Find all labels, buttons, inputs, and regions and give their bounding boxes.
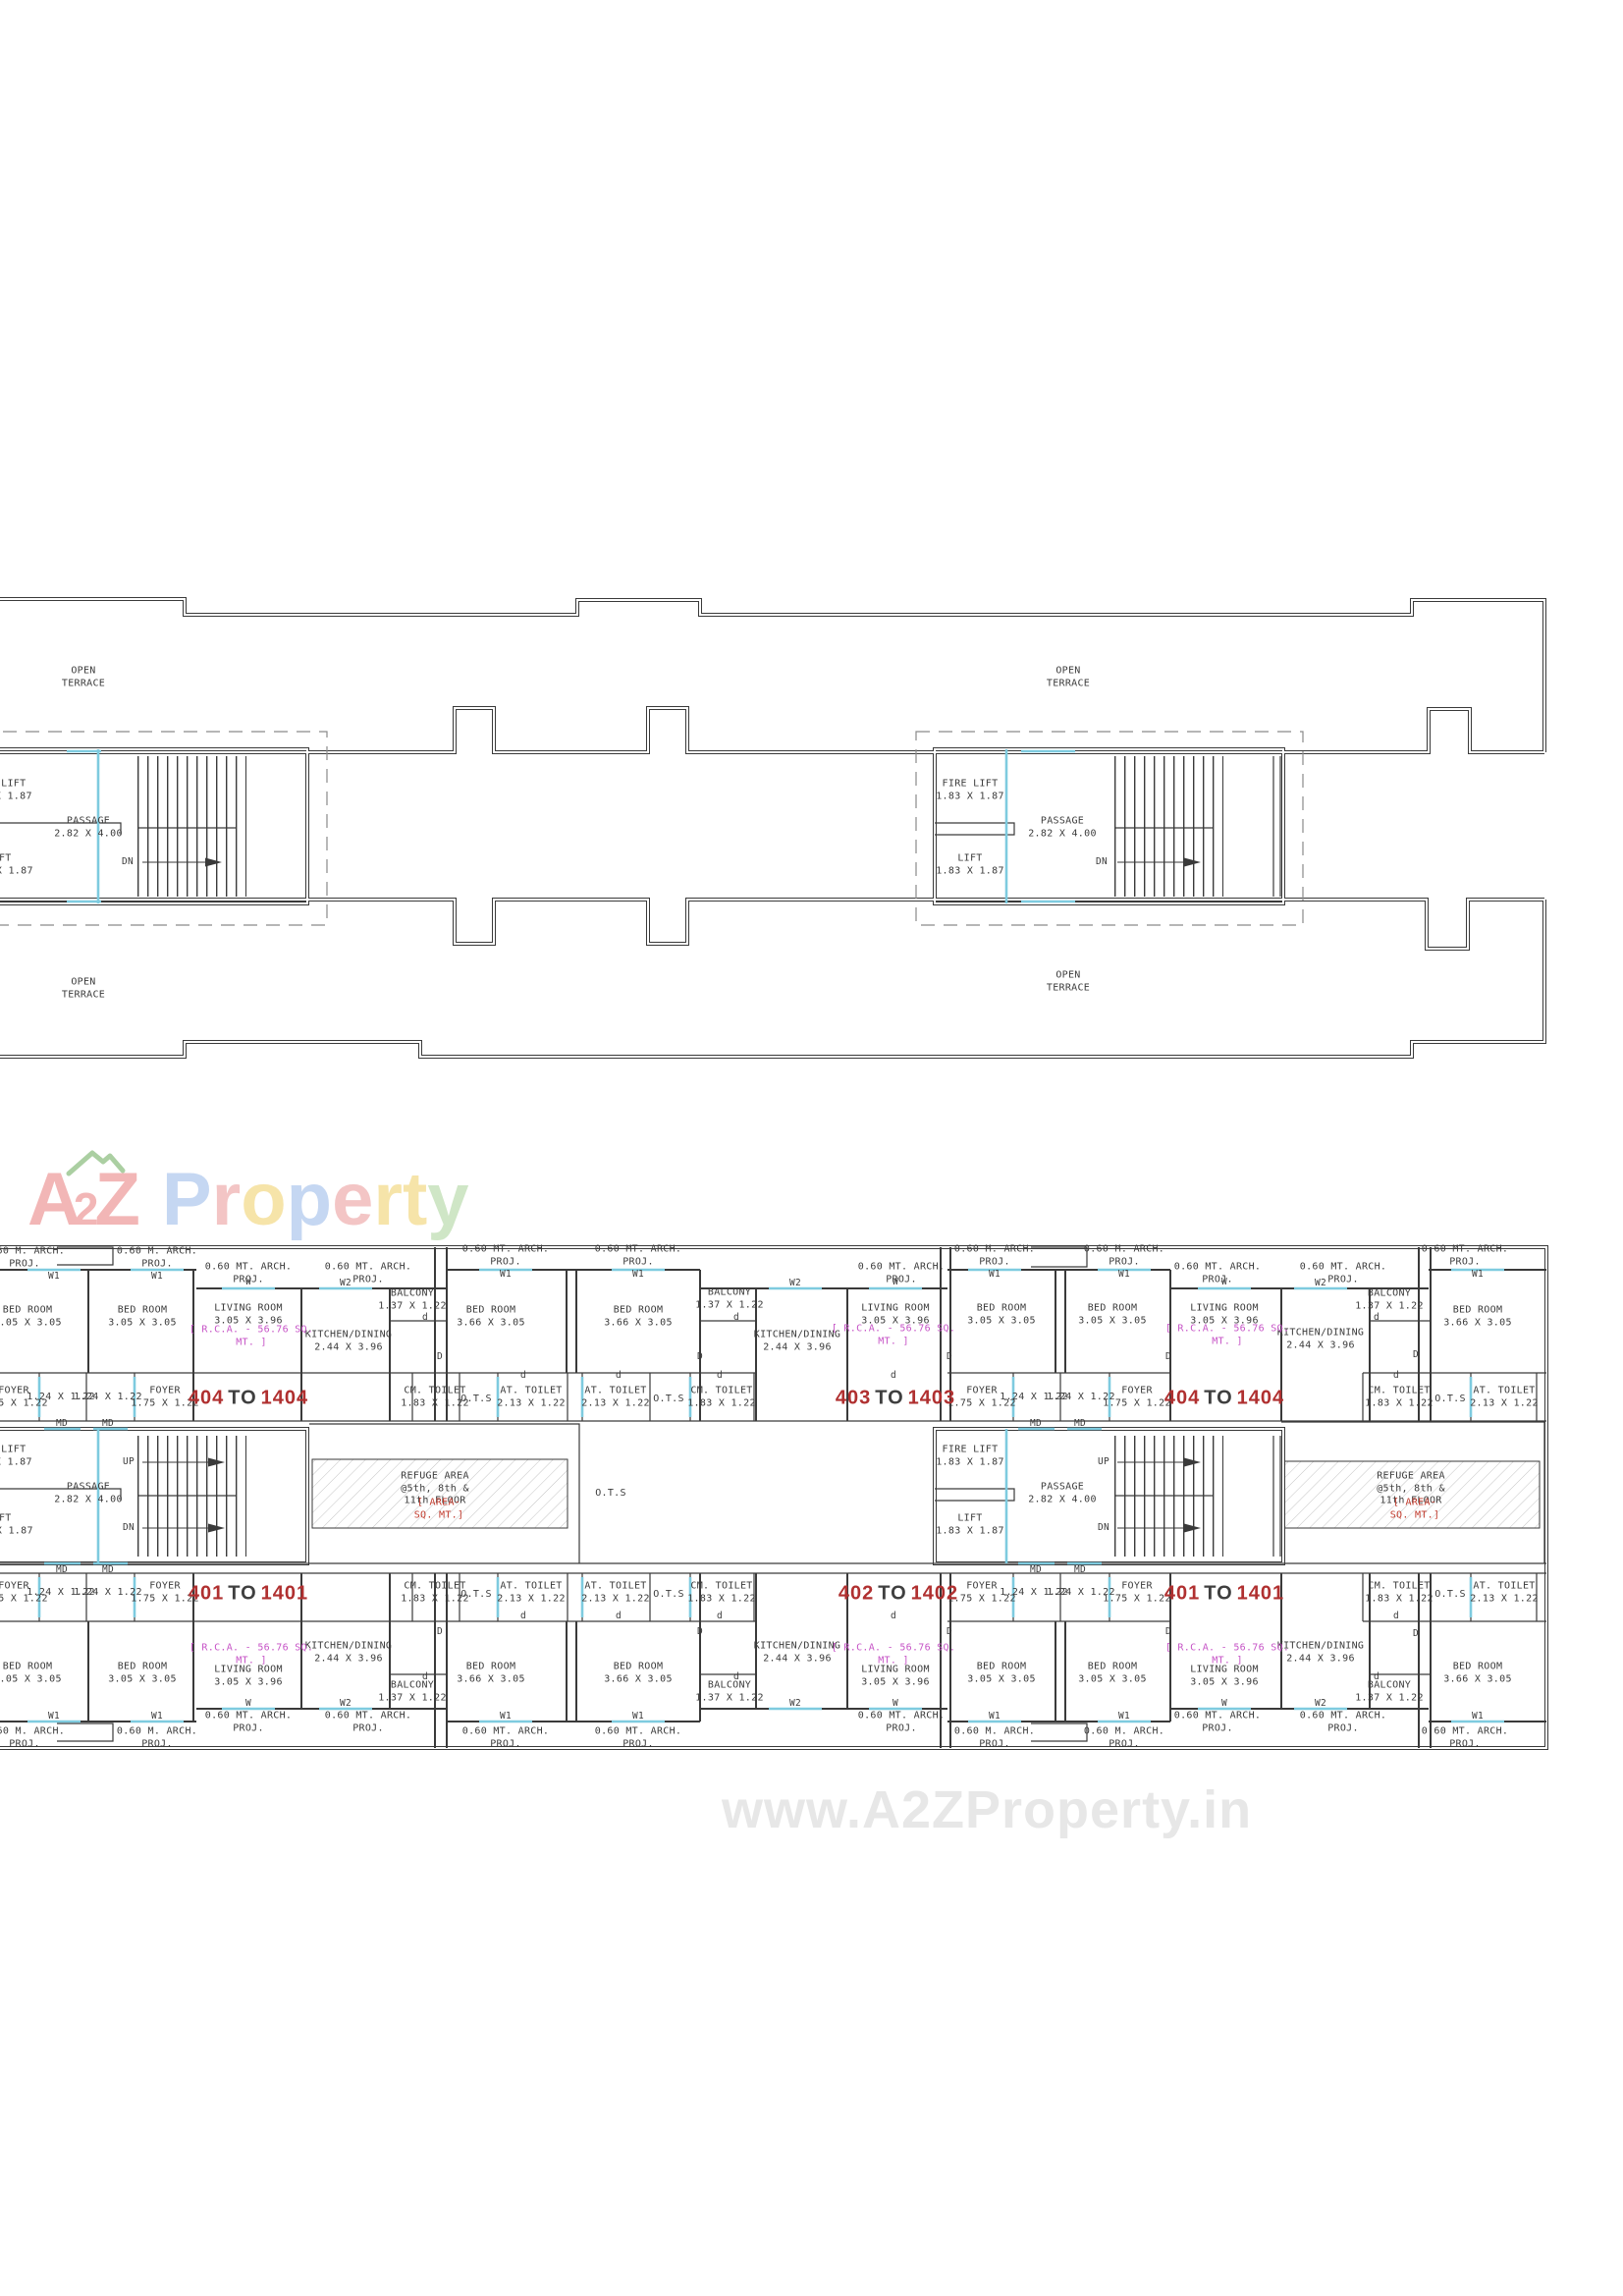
plan-label: BED ROOM 3.05 X 3.05 xyxy=(0,1662,62,1686)
plan-label: W1 xyxy=(48,1711,60,1722)
unit-number: 401TO1401 xyxy=(189,1583,308,1606)
refuge-area-red-label: [ AREA- SQ. MT.] xyxy=(414,1498,464,1522)
plan-label: d xyxy=(1393,1611,1399,1622)
plan-label: W2 xyxy=(340,1698,352,1710)
plan-label: W1 xyxy=(1118,1269,1130,1281)
plan-label: O.T.S xyxy=(1434,1589,1466,1602)
plan-label: 0.60 M. ARCH. PROJ. xyxy=(117,1246,197,1271)
plan-label: MD xyxy=(1074,1564,1086,1576)
plan-label: d xyxy=(520,1611,526,1622)
plan-label: BALCONY 1.37 X 1.22 xyxy=(695,1287,764,1312)
plan-label: AT. TOILET 2.13 X 1.22 xyxy=(497,1386,566,1410)
plan-label: 0.60 MT. ARCH. PROJ. xyxy=(462,1244,550,1269)
plan-label: BALCONY 1.37 X 1.22 xyxy=(695,1680,764,1705)
plan-label: UP xyxy=(123,1456,135,1468)
logo-letter: e xyxy=(332,1158,373,1241)
plan-label: W2 xyxy=(789,1278,801,1289)
plan-label: BALCONY 1.37 X 1.22 xyxy=(378,1288,447,1313)
unit-number: 404TO1404 xyxy=(189,1388,308,1410)
plan-label: UP xyxy=(1098,1456,1109,1468)
unit-number: 404TO1404 xyxy=(1164,1388,1284,1410)
plan-label: d xyxy=(891,1370,896,1382)
fire-lift-label: FIRE LIFT 1.83 X 1.87 xyxy=(936,779,1004,803)
unit-number: 401TO1401 xyxy=(1164,1583,1284,1606)
plan-label: BED ROOM 3.66 X 3.05 xyxy=(604,1305,673,1330)
open-terrace-label: OPEN TERRACE xyxy=(62,977,105,1002)
plan-label: W1 xyxy=(48,1271,60,1283)
stair-dn-label: DN xyxy=(1096,856,1108,868)
plan-label: BALCONY 1.37 X 1.22 xyxy=(1355,1288,1424,1313)
plan-label: O.T.S xyxy=(653,1589,684,1602)
plan-label: W1 xyxy=(1472,1711,1484,1722)
plan-label: BED ROOM 3.05 X 3.05 xyxy=(108,1662,177,1686)
lift-label: LIFT 1.83 X 1.87 xyxy=(0,1513,33,1538)
plan-label: KITCHEN/DINING 2.44 X 3.96 xyxy=(1277,1328,1365,1352)
fire-lift-label: FIRE LIFT 1.83 X 1.87 xyxy=(0,1445,32,1469)
plan-label: W2 xyxy=(789,1698,801,1710)
plan-label: d xyxy=(717,1370,723,1382)
plan-label: KITCHEN/DINING 2.44 X 3.96 xyxy=(305,1641,393,1666)
plan-label: AT. TOILET 2.13 X 1.22 xyxy=(1470,1386,1539,1410)
plan-label: D xyxy=(437,1626,443,1638)
plan-label: W xyxy=(245,1698,251,1710)
open-terrace-label: OPEN TERRACE xyxy=(62,666,105,690)
floorplan-drawing xyxy=(0,0,1623,2296)
ots-label: O.T.S xyxy=(595,1488,626,1501)
open-terrace-label: OPEN TERRACE xyxy=(1047,666,1090,690)
rca-area-label: [ R.C.A. - 56.76 SQ. MT. ] xyxy=(1165,1324,1289,1348)
plan-label: W xyxy=(1221,1698,1227,1710)
plan-label: 0.60 M. ARCH. PROJ. xyxy=(1084,1244,1164,1269)
plan-label: W1 xyxy=(151,1711,163,1722)
plan-label: d xyxy=(616,1370,622,1382)
plan-label: W2 xyxy=(1315,1278,1326,1289)
plan-label: BED ROOM 3.66 X 3.05 xyxy=(1443,1305,1512,1330)
plan-label: MD xyxy=(1030,1418,1042,1430)
plan-label: 0.60 MT. ARCH. PROJ. xyxy=(462,1726,550,1751)
plan-label: 0.60 MT. ARCH. PROJ. xyxy=(1300,1262,1387,1286)
plan-label: MD xyxy=(102,1418,114,1430)
logo-letter: y xyxy=(427,1158,468,1241)
logo-roof-icon xyxy=(66,1147,127,1176)
plan-label: O.T.S xyxy=(460,1394,492,1406)
unit-number: 402TO1402 xyxy=(839,1583,958,1606)
passage-label: PASSAGE 2.82 X 4.00 xyxy=(54,1482,123,1506)
plan-label: W1 xyxy=(1118,1711,1130,1722)
plan-label: BED ROOM 3.66 X 3.05 xyxy=(1443,1662,1512,1686)
plan-label: CM. TOILET 1.83 X 1.22 xyxy=(1365,1386,1434,1410)
plan-label: W xyxy=(1221,1277,1227,1288)
plan-label: BED ROOM 3.05 X 3.05 xyxy=(967,1662,1036,1686)
plan-label: d xyxy=(891,1611,896,1622)
logo-letter: t xyxy=(403,1158,427,1241)
plan-label: W1 xyxy=(632,1269,644,1281)
plan-label: FOYER 1.75 X 1.22 xyxy=(1103,1386,1171,1410)
plan-label: W2 xyxy=(340,1278,352,1289)
plan-label: 0.60 MT. ARCH. PROJ. xyxy=(1422,1726,1509,1751)
plan-label: BED ROOM 3.05 X 3.05 xyxy=(1078,1662,1147,1686)
passage-label: PASSAGE 2.82 X 4.00 xyxy=(54,816,123,841)
plan-label: O.T.S xyxy=(653,1394,684,1406)
plan-label: O.T.S xyxy=(1434,1394,1466,1406)
plan-label: O.T.S xyxy=(460,1589,492,1602)
watermark-text: www.A2ZProperty.in xyxy=(722,1779,1252,1840)
plan-label: KITCHEN/DINING 2.44 X 3.96 xyxy=(754,1641,841,1666)
plan-label: d xyxy=(733,1671,739,1683)
plan-label: 0.60 MT. ARCH. PROJ. xyxy=(325,1262,412,1286)
plan-label: D xyxy=(1413,1628,1419,1640)
plan-label: 0.60 MT. ARCH. PROJ. xyxy=(205,1711,293,1735)
logo-letter: p xyxy=(287,1158,332,1241)
plan-label: 0.60 MT. ARCH. PROJ. xyxy=(325,1711,412,1735)
open-terrace-label: OPEN TERRACE xyxy=(1047,970,1090,995)
plan-label: DN xyxy=(123,1522,135,1534)
plan-label: W xyxy=(893,1277,898,1288)
plan-label: 0.60 MT. ARCH. PROJ. xyxy=(1422,1244,1509,1269)
plan-label: 0.60 M. ARCH. PROJ. xyxy=(954,1244,1035,1269)
logo-letter: o xyxy=(241,1158,286,1241)
plan-label: MD xyxy=(1030,1564,1042,1576)
rca-area-label: [ R.C.A. - 56.76 SQ. MT. ] xyxy=(189,1325,313,1349)
rca-area-label: [ R.C.A. - 56.76 SQ. MT. ] xyxy=(189,1643,313,1667)
lift-label: LIFT 1.83 X 1.87 xyxy=(0,853,33,878)
plan-label: D xyxy=(697,1626,703,1638)
refuge-area-red-label: [ AREA- SQ. MT.] xyxy=(1390,1498,1440,1522)
plan-label: MD xyxy=(1074,1418,1086,1430)
plan-label: 0.60 MT. ARCH. PROJ. xyxy=(595,1244,682,1269)
plan-label: CM. TOILET 1.83 X 1.22 xyxy=(687,1386,756,1410)
plan-label: CM. TOILET 1.83 X 1.22 xyxy=(1365,1581,1434,1606)
plan-label: d xyxy=(1374,1312,1380,1324)
fire-lift-label: FIRE LIFT 1.83 X 1.87 xyxy=(0,779,32,803)
plan-label: d xyxy=(717,1611,723,1622)
plan-label: W1 xyxy=(500,1711,512,1722)
plan-label: BED ROOM 3.05 X 3.05 xyxy=(967,1303,1036,1328)
plan-label: d xyxy=(1393,1370,1399,1382)
plan-label: 0.60 MT. ARCH. PROJ. xyxy=(1300,1711,1387,1735)
plan-label: 0.60 M. ARCH. PROJ. xyxy=(954,1726,1035,1751)
plan-label: AT. TOILET 2.13 X 1.22 xyxy=(497,1581,566,1606)
floorplan-page: A2ZProperty www.A2ZProperty.in OPEN TERR… xyxy=(0,0,1623,2296)
plan-label: CM. TOILET 1.83 X 1.22 xyxy=(687,1581,756,1606)
plan-label: D xyxy=(1165,1626,1171,1638)
plan-label: W xyxy=(245,1277,251,1288)
stair-dn-label: DN xyxy=(122,856,134,868)
lift-label: LIFT 1.83 X 1.87 xyxy=(936,1513,1004,1538)
logo-letter: P xyxy=(162,1158,212,1241)
plan-label: 0.60 M. ARCH. PROJ. xyxy=(0,1246,65,1271)
plan-label: CM. TOILET 1.83 X 1.22 xyxy=(401,1581,469,1606)
a2z-property-logo: A2ZProperty xyxy=(27,1163,469,1237)
plan-label: d xyxy=(616,1611,622,1622)
passage-label: PASSAGE 2.82 X 4.00 xyxy=(1028,1482,1097,1506)
plan-label: BED ROOM 3.66 X 3.05 xyxy=(457,1305,525,1330)
plan-label: W1 xyxy=(151,1271,163,1283)
lift-label: LIFT 1.83 X 1.87 xyxy=(936,853,1004,878)
plan-label: BED ROOM 3.05 X 3.05 xyxy=(108,1305,177,1330)
plan-label: 0.60 M. ARCH. PROJ. xyxy=(1084,1726,1164,1751)
plan-label: BED ROOM 3.05 X 3.05 xyxy=(1078,1303,1147,1328)
plan-label: CM. TOILET 1.83 X 1.22 xyxy=(401,1386,469,1410)
plan-label: 0.60 MT. ARCH. PROJ. xyxy=(858,1711,946,1735)
plan-label: BALCONY 1.37 X 1.22 xyxy=(1355,1680,1424,1705)
logo-letter-2: 2 xyxy=(74,1183,99,1234)
plan-label: d xyxy=(422,1671,428,1683)
plan-label: 0.60 MT. ARCH. PROJ. xyxy=(1174,1262,1262,1286)
plan-label: MD xyxy=(56,1418,68,1430)
plan-label: D xyxy=(947,1626,952,1638)
plan-label: 0.60 MT. ARCH. PROJ. xyxy=(1174,1711,1262,1735)
plan-label: KITCHEN/DINING 2.44 X 3.96 xyxy=(754,1330,841,1354)
plan-label: 0.60 M. ARCH. PROJ. xyxy=(0,1726,65,1751)
plan-label: AT. TOILET 2.13 X 1.22 xyxy=(581,1386,650,1410)
plan-label: KITCHEN/DINING 2.44 X 3.96 xyxy=(1277,1641,1365,1666)
plan-label: BED ROOM 3.66 X 3.05 xyxy=(604,1662,673,1686)
plan-label: FOYER 1.75 X 1.22 xyxy=(1103,1581,1171,1606)
plan-label: BED ROOM 3.66 X 3.05 xyxy=(457,1662,525,1686)
fire-lift-label: FIRE LIFT 1.83 X 1.87 xyxy=(936,1445,1004,1469)
plan-label: d xyxy=(733,1312,739,1324)
plan-label: LIVING ROOM 3.05 X 3.96 xyxy=(214,1665,283,1689)
plan-label: DN xyxy=(1098,1522,1109,1534)
plan-label: D xyxy=(437,1351,443,1363)
logo-letter: r xyxy=(373,1158,403,1241)
plan-label: D xyxy=(1413,1349,1419,1361)
plan-label: D xyxy=(697,1351,703,1363)
plan-label: AT. TOILET 2.13 X 1.22 xyxy=(581,1581,650,1606)
unit-number: 403TO1403 xyxy=(836,1388,955,1410)
plan-label: LIVING ROOM 3.05 X 3.96 xyxy=(861,1665,930,1689)
plan-label: 0.60 MT. ARCH. PROJ. xyxy=(858,1262,946,1286)
logo-word-property: Property xyxy=(162,1158,469,1241)
plan-label: MD xyxy=(102,1564,114,1576)
plan-label: 0.60 MT. ARCH. PROJ. xyxy=(595,1726,682,1751)
rca-area-label: [ R.C.A. - 56.76 SQ. MT. ] xyxy=(832,1643,955,1667)
plan-label: W1 xyxy=(989,1711,1001,1722)
plan-label: W1 xyxy=(989,1269,1001,1281)
plan-label: d xyxy=(1374,1671,1380,1683)
plan-label: W xyxy=(893,1698,898,1710)
plan-label: d xyxy=(422,1312,428,1324)
plan-label: W2 xyxy=(1315,1698,1326,1710)
plan-label: KITCHEN/DINING 2.44 X 3.96 xyxy=(305,1330,393,1354)
plan-label: BED ROOM 3.05 X 3.05 xyxy=(0,1305,62,1330)
logo-letter: r xyxy=(212,1158,242,1241)
rca-area-label: [ R.C.A. - 56.76 SQ. MT. ] xyxy=(832,1324,955,1348)
plan-label: d xyxy=(520,1370,526,1382)
rca-area-label: [ R.C.A. - 56.76 SQ. MT. ] xyxy=(1165,1643,1289,1667)
passage-label: PASSAGE 2.82 X 4.00 xyxy=(1028,816,1097,841)
plan-label: W1 xyxy=(500,1269,512,1281)
plan-label: LIVING ROOM 3.05 X 3.96 xyxy=(1190,1665,1259,1689)
plan-label: W1 xyxy=(1472,1269,1484,1281)
plan-label: 0.60 M. ARCH. PROJ. xyxy=(117,1726,197,1751)
plan-label: BALCONY 1.37 X 1.22 xyxy=(378,1680,447,1705)
plan-label: D xyxy=(1165,1351,1171,1363)
plan-label: AT. TOILET 2.13 X 1.22 xyxy=(1470,1581,1539,1606)
plan-label: MD xyxy=(56,1564,68,1576)
plan-label: W1 xyxy=(632,1711,644,1722)
plan-label: D xyxy=(947,1351,952,1363)
